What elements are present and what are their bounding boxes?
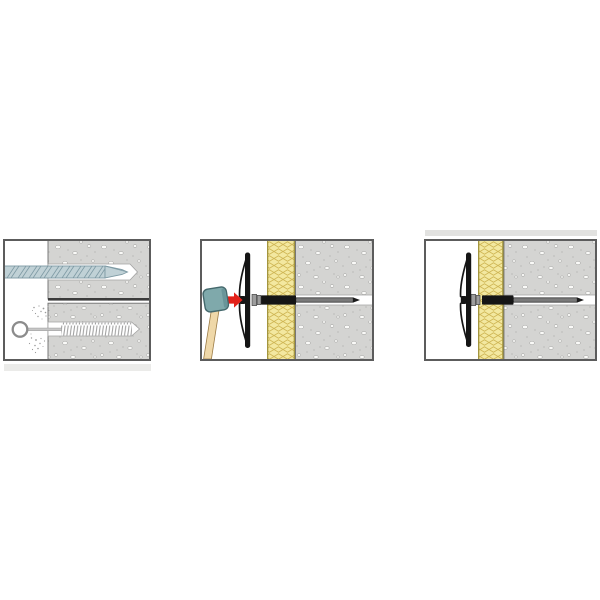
drill-bit-icon bbox=[5, 266, 128, 278]
brush-shaft bbox=[28, 328, 62, 331]
block-divider bbox=[48, 298, 149, 301]
shadow-strip-below-left-panel bbox=[4, 364, 151, 371]
fastener-disc bbox=[461, 253, 472, 348]
brush-bristles bbox=[61, 323, 132, 336]
expansion-sleeve bbox=[482, 295, 514, 304]
panel-hammer-in-fastener bbox=[200, 239, 374, 361]
pin-head-nub bbox=[461, 296, 467, 304]
hammer-head bbox=[202, 286, 229, 312]
panel-fastener-installed bbox=[424, 239, 597, 361]
shadow-strip-above-right-panel bbox=[425, 230, 597, 236]
metal-pin bbox=[514, 297, 585, 302]
panel-drill-and-clean-hole bbox=[3, 239, 151, 361]
hub-collar-inner bbox=[476, 295, 480, 304]
hub-collar-outer bbox=[252, 294, 257, 305]
hub-collar-inner bbox=[257, 295, 261, 304]
installation-instruction-sheet bbox=[0, 0, 600, 600]
concrete-wall bbox=[48, 241, 149, 359]
cleaning-brush-icon bbox=[13, 322, 132, 337]
hammer-handle bbox=[204, 309, 219, 360]
expansion-sleeve bbox=[261, 295, 296, 304]
hub-collar-outer bbox=[471, 294, 476, 305]
brush-ring-handle bbox=[13, 322, 28, 337]
metal-pin bbox=[296, 297, 360, 302]
hammer-icon bbox=[202, 286, 229, 359]
